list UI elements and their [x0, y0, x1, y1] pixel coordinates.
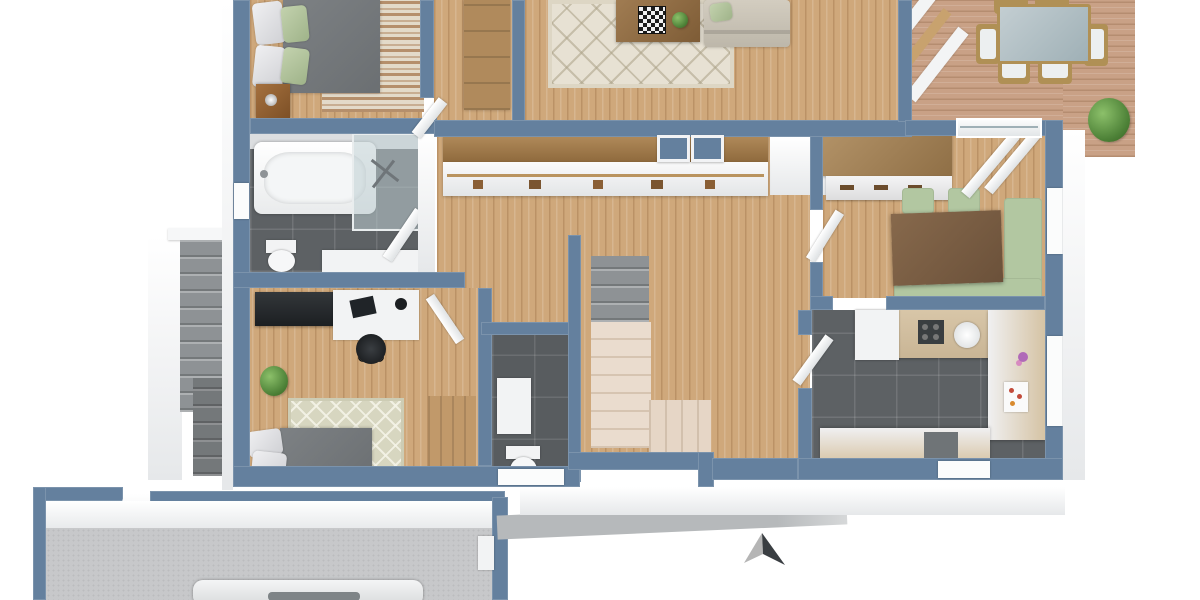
kitchen-counter-bottom-run [820, 428, 990, 462]
north-arrow [735, 528, 795, 570]
dining-table [891, 210, 1003, 286]
toilet [268, 250, 295, 272]
exterior-stair-wall [148, 236, 182, 480]
garage-door-frame [478, 536, 494, 570]
stairs-main-flight [591, 322, 651, 448]
floor-plan-render [0, 0, 1200, 600]
deck-dining-table [997, 4, 1091, 64]
table-plant [672, 12, 688, 28]
kitchen-counter-right-run [988, 310, 1045, 440]
stairs-upper-gray [591, 256, 649, 322]
kitchen-sink [954, 322, 980, 348]
garage-wall-face [46, 501, 496, 531]
dining-kitchen-wall-left [810, 296, 833, 310]
bathroom-office-wall [233, 272, 465, 288]
sliding-door-track [956, 118, 1042, 138]
kitchen-south-wall [798, 458, 1063, 480]
sofa-cushion-green [709, 2, 733, 23]
garage-wall [33, 487, 46, 600]
kitchen-cooktop [918, 320, 944, 344]
shower-fixture [371, 159, 400, 182]
dining-left-wall-lower [810, 262, 823, 298]
bedroom-pillow-green [280, 47, 310, 86]
hall-living-wall [512, 0, 525, 122]
south-wall-outer-face [520, 487, 1065, 515]
bathroom-window [234, 183, 249, 219]
kitchen-south-window [938, 461, 990, 478]
living-deck-wall [898, 0, 912, 122]
dining-left-wall-upper [810, 136, 823, 210]
cutting-board [1004, 382, 1028, 412]
car-windshield [268, 592, 360, 600]
bathroom-vanity [322, 250, 420, 272]
bedroom-pillow-green [280, 5, 310, 44]
office-plant [260, 366, 288, 396]
bathroom-wall-face-right [418, 133, 435, 272]
dining-chair [902, 188, 934, 214]
kitchen-window [1047, 336, 1062, 426]
bedroom-bathroom-wall [250, 118, 437, 134]
coffee-table [616, 0, 700, 42]
dining-window [1047, 188, 1062, 254]
exterior-wall-left [233, 0, 250, 487]
garage-wall [492, 497, 508, 600]
wc-north-wall [481, 322, 580, 335]
wall-niche [691, 135, 724, 162]
nightstand [256, 84, 290, 118]
laptop [349, 296, 376, 319]
desk-lamp [395, 298, 407, 310]
garage-wall [33, 487, 123, 501]
bedroom-right-wall [420, 0, 434, 98]
hall-wardrobe [464, 0, 510, 110]
sofa [704, 0, 790, 47]
hall-closet-front [443, 162, 768, 196]
kitchen-fridge [855, 310, 899, 360]
office-sideboard [255, 292, 335, 326]
kitchen-appliance [924, 432, 958, 460]
dining-kitchen-wall-right [886, 296, 1045, 310]
wall-niche [657, 135, 690, 162]
closet-rail [447, 174, 764, 177]
south-wall-center [568, 452, 712, 470]
kitchen-left-wall-upper [798, 310, 812, 335]
east-wall-outer-face [1063, 130, 1085, 480]
office-wardrobe [428, 396, 476, 466]
south-wall-hall [712, 458, 798, 480]
office-chair [356, 334, 386, 364]
deck-plant [1088, 98, 1130, 142]
chessboard [638, 6, 666, 34]
bath-faucet [260, 170, 268, 178]
stair-left-wall [568, 235, 581, 482]
left-wall-outer-face [222, 0, 233, 490]
office-right-wall [478, 288, 492, 466]
office-desk [333, 290, 419, 340]
dining-sideboard-top [822, 134, 952, 176]
wc-vanity [497, 378, 531, 434]
kitchen-flowers [1018, 352, 1028, 362]
wc-window [498, 469, 564, 485]
